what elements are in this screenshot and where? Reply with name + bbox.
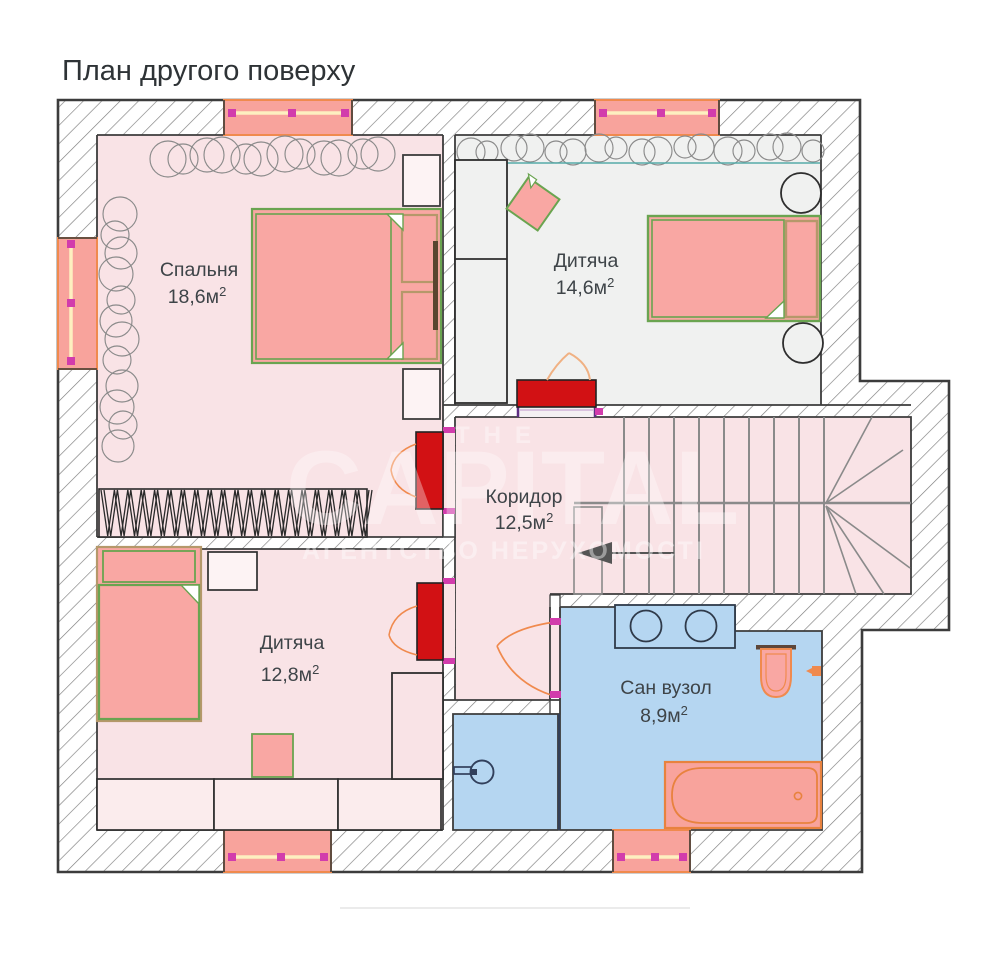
svg-text:12,5м2: 12,5м2 bbox=[495, 510, 554, 534]
svg-text:Дитяча: Дитяча bbox=[260, 632, 325, 654]
svg-text:Сан вузол: Сан вузол bbox=[620, 677, 712, 699]
svg-text:18,6м2: 18,6м2 bbox=[168, 284, 227, 308]
svg-text:Коридор: Коридор bbox=[485, 486, 562, 508]
svg-text:12,8м2: 12,8м2 bbox=[261, 662, 320, 686]
svg-text:Спальня: Спальня bbox=[160, 259, 238, 281]
svg-text:План другого поверху: План другого поверху bbox=[62, 55, 356, 87]
svg-text:14,6м2: 14,6м2 bbox=[556, 275, 615, 299]
svg-text:АГЕНТСТВО НЕРУХОМОСТІ: АГЕНТСТВО НЕРУХОМОСТІ bbox=[302, 537, 706, 565]
svg-text:Дитяча: Дитяча bbox=[554, 250, 619, 272]
